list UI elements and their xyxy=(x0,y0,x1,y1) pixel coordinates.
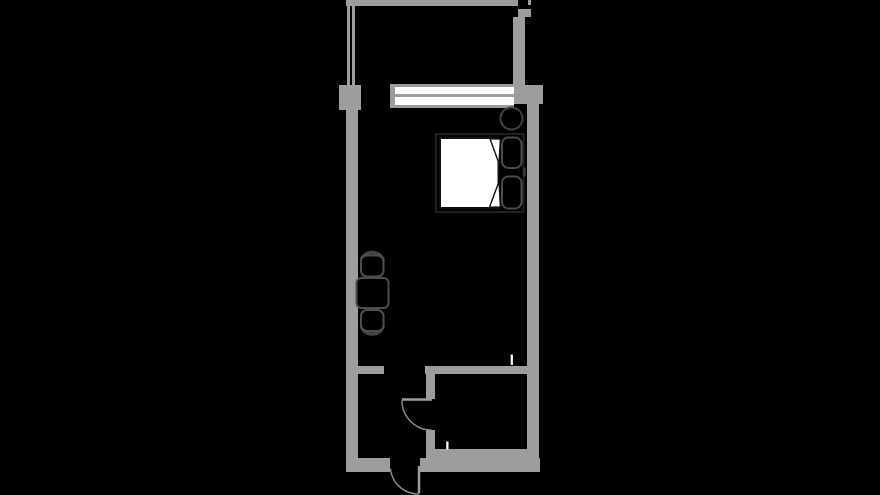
chair-bottom-seat xyxy=(361,310,384,331)
pillow-bottom xyxy=(502,177,522,209)
entrance-door-swing-arc xyxy=(391,469,419,495)
floor-plan xyxy=(0,0,880,495)
pillow-top xyxy=(502,138,522,169)
table xyxy=(357,278,389,308)
bed-mattress xyxy=(440,138,499,208)
stool-circle xyxy=(501,108,523,130)
wall-marker-tick-bathroom xyxy=(446,442,448,450)
wall-marker-tick-right xyxy=(511,355,513,366)
furniture-layer xyxy=(0,0,880,495)
chair-top-seat xyxy=(361,256,384,277)
bathroom-door-swing-arc xyxy=(402,401,432,431)
